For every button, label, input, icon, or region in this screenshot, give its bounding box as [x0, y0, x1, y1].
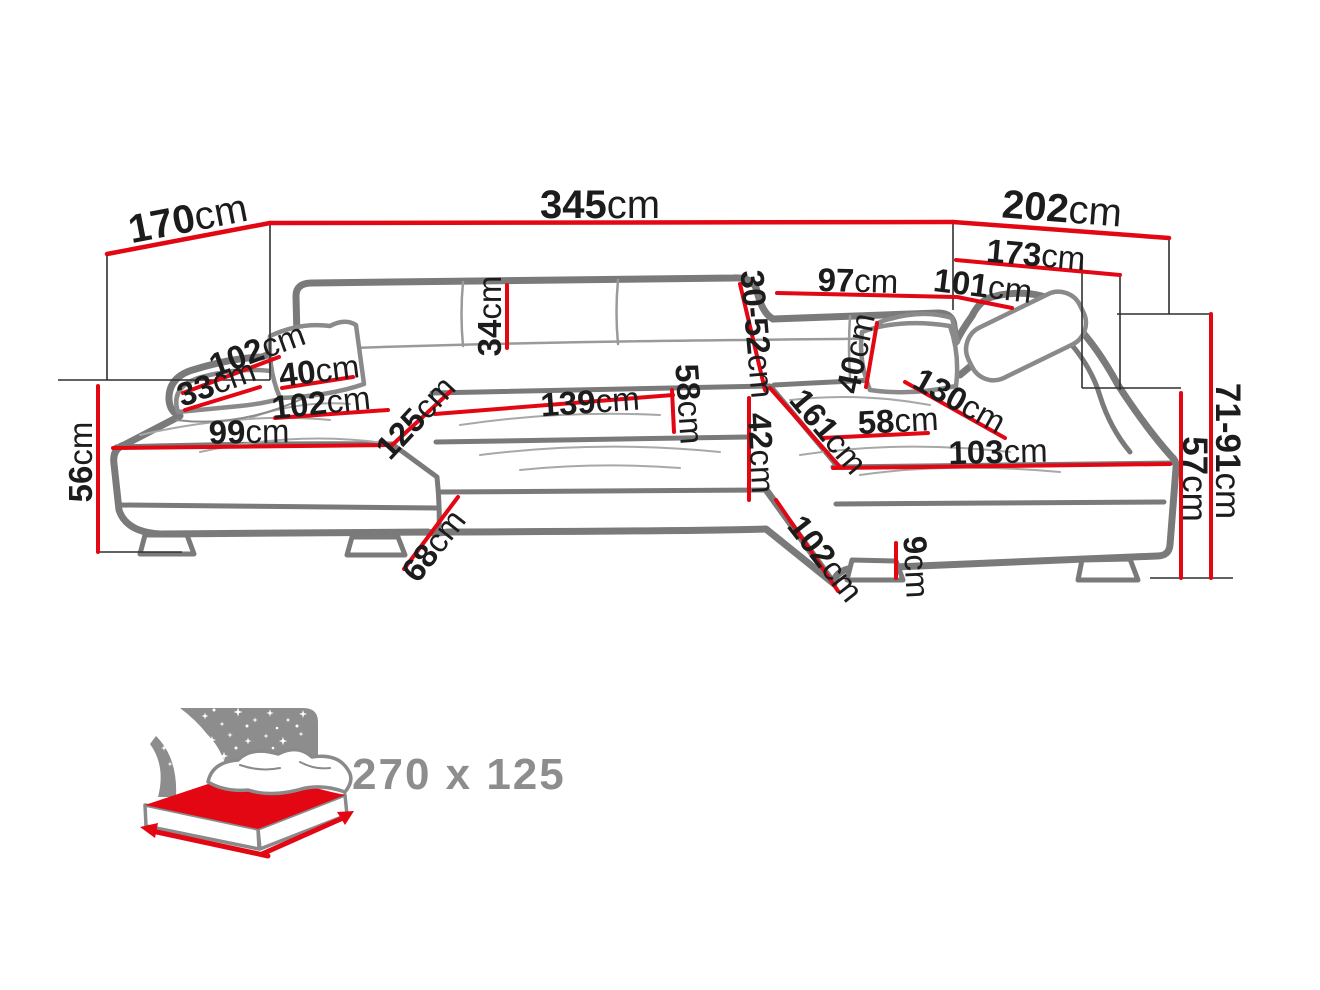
- right-base-band: [836, 502, 1164, 504]
- dim-value: 42: [741, 412, 780, 451]
- sofa-dimension-diagram: 170cm 345cm 202cm 173cm 97cm 101cm 34cm …: [0, 0, 1320, 990]
- dim-label-97: 97cm: [817, 260, 899, 299]
- star-icon: [194, 731, 199, 736]
- dim-unit: cm: [1176, 475, 1215, 522]
- starry-night-panel-small: [150, 736, 176, 797]
- sofa-leg: [1078, 559, 1138, 580]
- dim-value: 99: [208, 413, 245, 451]
- sofa-leg: [140, 535, 194, 554]
- dim-unit: cm: [471, 276, 508, 320]
- dim-label-57: 57cm: [1176, 436, 1215, 522]
- dim-value: 173: [985, 231, 1043, 273]
- dim-label-58-right: 58cm: [857, 399, 940, 440]
- dim-label-42: 42cm: [741, 412, 782, 495]
- dim-unit: cm: [325, 378, 373, 419]
- dim-label-58-center: 58cm: [669, 362, 712, 445]
- dim-value: 9: [897, 535, 935, 555]
- dim-value: 58: [669, 362, 708, 401]
- star-icon: [204, 758, 209, 763]
- dim-unit: cm: [594, 379, 640, 419]
- star-dot: [272, 747, 275, 750]
- dim-unit: cm: [986, 267, 1034, 309]
- dim-unit: cm: [743, 448, 782, 494]
- dim-unit: cm: [1040, 236, 1087, 277]
- star-dot: [202, 747, 205, 750]
- dim-unit: cm: [741, 353, 782, 400]
- dim-label-345: 345cm: [540, 183, 660, 227]
- dim-unit: cm: [898, 553, 937, 599]
- star-dot: [276, 727, 279, 730]
- dim-value: 97: [817, 260, 855, 298]
- dim-label-9: 9cm: [897, 535, 937, 599]
- dim-unit: cm: [607, 183, 660, 227]
- dim-label-34: 34cm: [471, 276, 508, 357]
- dim-unit: cm: [1067, 188, 1124, 236]
- star-dot: [246, 725, 249, 728]
- dim-label-99: 99cm: [208, 412, 289, 450]
- dim-label-202: 202cm: [1000, 182, 1123, 235]
- dim-unit: cm: [671, 399, 711, 445]
- star-dot: [235, 747, 238, 750]
- center-base-band: [439, 490, 767, 492]
- star-dot: [213, 709, 216, 712]
- dim-label-139: 139cm: [539, 379, 640, 423]
- dim-label-56: 56cm: [62, 422, 99, 503]
- dim-value: 139: [539, 382, 597, 423]
- dim-value: 101: [932, 261, 991, 304]
- left-base-band: [121, 505, 437, 508]
- star-icon: [185, 750, 192, 757]
- dim-label-170: 170cm: [125, 186, 251, 252]
- dim-value: 345: [540, 183, 607, 227]
- dim-value: 56: [62, 466, 99, 503]
- dim-value: 30-52: [734, 268, 778, 355]
- width-arrow-head: [140, 823, 158, 838]
- dim-label-103: 103cm: [948, 431, 1048, 471]
- diagram-svg: 170cm 345cm 202cm 173cm 97cm 101cm 34cm …: [0, 0, 1320, 990]
- star-dot: [296, 725, 299, 728]
- dim-value: 170: [125, 196, 199, 252]
- dim-value: 202: [1000, 182, 1070, 231]
- dim-value: 57: [1176, 436, 1215, 475]
- dim-value: 34: [471, 319, 508, 356]
- dim-unit: cm: [854, 261, 899, 299]
- sleep-function-icon: 270 x 125: [140, 708, 566, 857]
- dim-unit: cm: [190, 186, 251, 239]
- dim-unit: cm: [62, 422, 99, 466]
- dim-value: 58: [857, 402, 896, 441]
- sofa-leg: [347, 537, 405, 555]
- dim-unit: cm: [1003, 431, 1048, 469]
- star-dot: [179, 740, 182, 743]
- dim-unit: cm: [245, 412, 290, 450]
- sleeping-area-size-label: 270 x 125: [352, 750, 566, 799]
- dim-value: 103: [948, 432, 1004, 470]
